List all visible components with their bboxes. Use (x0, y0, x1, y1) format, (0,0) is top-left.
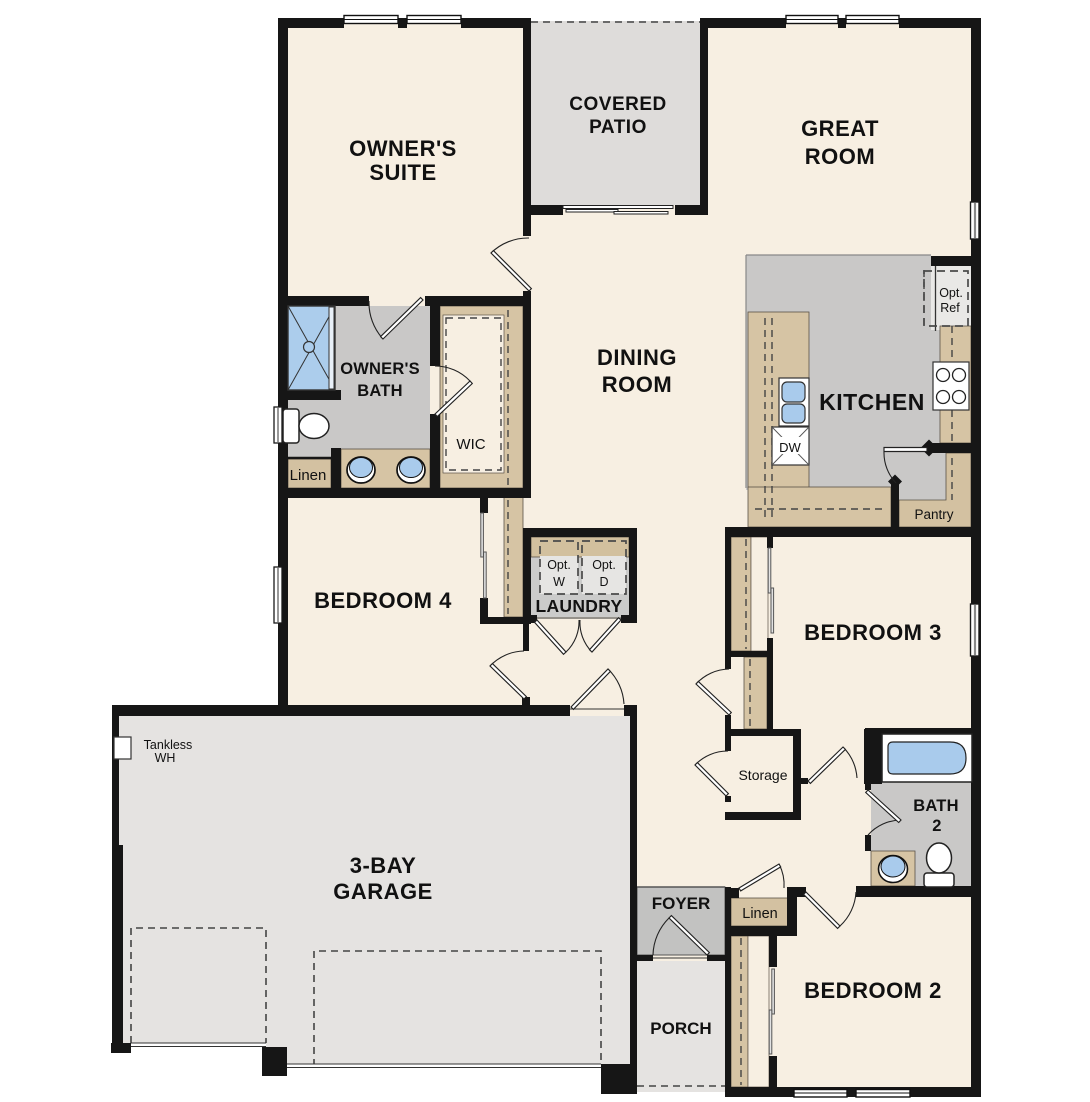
svg-text:Pantry: Pantry (914, 507, 953, 522)
svg-text:Tankless: Tankless (144, 738, 193, 752)
svg-text:GREAT: GREAT (801, 116, 879, 141)
svg-text:BATH: BATH (913, 797, 958, 815)
svg-text:D: D (599, 575, 608, 589)
svg-text:Linen: Linen (742, 906, 777, 922)
svg-text:BEDROOM 2: BEDROOM 2 (804, 978, 942, 1003)
svg-text:FOYER: FOYER (652, 894, 711, 913)
svg-text:Linen: Linen (290, 467, 327, 484)
svg-text:W: W (553, 575, 565, 589)
svg-text:WH: WH (155, 751, 176, 765)
svg-text:ROOM: ROOM (805, 144, 875, 169)
svg-text:PORCH: PORCH (650, 1019, 711, 1038)
svg-text:Opt.: Opt. (592, 558, 616, 572)
svg-text:BEDROOM 3: BEDROOM 3 (804, 620, 942, 645)
svg-text:GARAGE: GARAGE (333, 879, 433, 904)
svg-text:DINING: DINING (597, 345, 677, 370)
svg-text:Ref: Ref (940, 301, 960, 315)
svg-text:OWNER'S: OWNER'S (349, 136, 457, 161)
svg-text:LAUNDRY: LAUNDRY (535, 596, 622, 616)
svg-text:2: 2 (932, 817, 941, 835)
svg-text:SUITE: SUITE (369, 160, 436, 185)
svg-text:BEDROOM 4: BEDROOM 4 (314, 588, 452, 613)
svg-text:KITCHEN: KITCHEN (819, 389, 925, 415)
svg-text:Opt.: Opt. (939, 286, 963, 300)
svg-text:Opt.: Opt. (547, 558, 571, 572)
svg-text:Storage: Storage (738, 767, 787, 783)
svg-text:ROOM: ROOM (602, 372, 672, 397)
svg-text:DW: DW (779, 440, 801, 455)
svg-text:3-BAY: 3-BAY (350, 853, 417, 878)
svg-text:WIC: WIC (456, 436, 485, 453)
svg-text:OWNER'S: OWNER'S (340, 360, 420, 378)
svg-text:BATH: BATH (357, 382, 402, 400)
svg-text:PATIO: PATIO (589, 117, 647, 138)
svg-text:COVERED: COVERED (569, 94, 666, 115)
